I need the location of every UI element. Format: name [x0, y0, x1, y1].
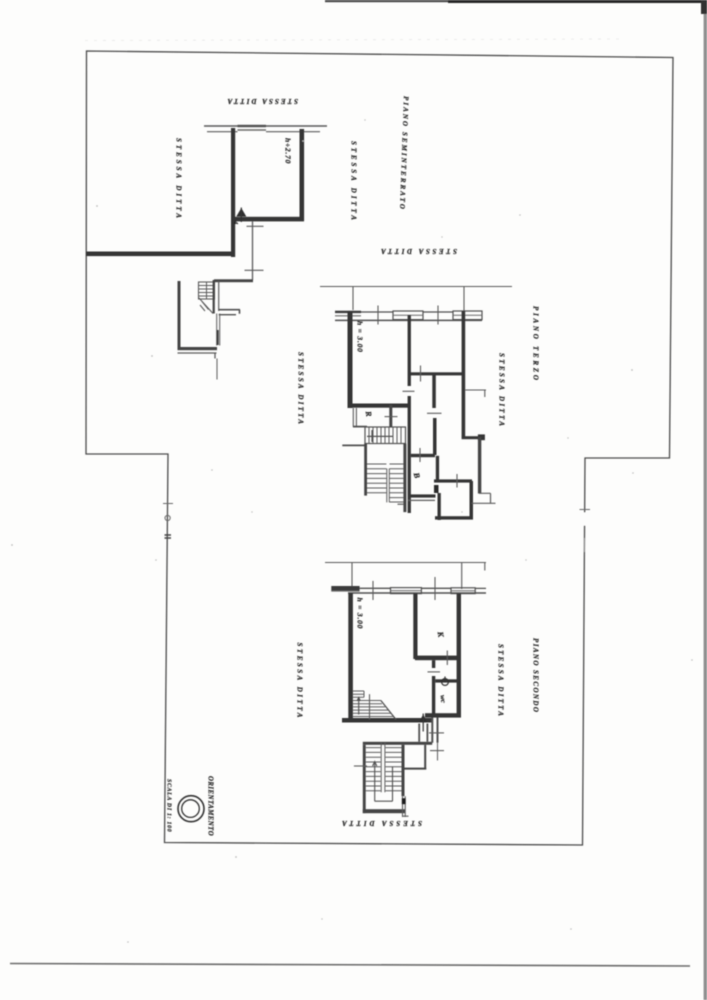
svg-text:ORIENTAMENTO: ORIENTAMENTO — [207, 776, 214, 836]
svg-text:STESSA DITTA: STESSA DITTA — [497, 644, 505, 718]
svg-text:STESSA DITTA: STESSA DITTA — [379, 247, 457, 255]
svg-text:PIANO SECONDO: PIANO SECONDO — [532, 638, 540, 713]
svg-text:B: B — [411, 471, 422, 480]
svg-text:PIANO SEMINTERRATO: PIANO SEMINTERRATO — [398, 96, 410, 210]
svg-text:h = 3.00: h = 3.00 — [356, 598, 365, 630]
svg-text:STESSA DITTA: STESSA DITTA — [297, 352, 305, 426]
svg-text:PIANO TERZO: PIANO TERZO — [532, 306, 540, 381]
svg-text:SCALA DI 1: 100: SCALA DI 1: 100 — [166, 779, 172, 832]
svg-text:STESSA DITTA: STESSA DITTA — [350, 141, 358, 222]
svg-text:K: K — [436, 630, 446, 638]
svg-text:STESSA DITTA: STESSA DITTA — [340, 819, 422, 827]
svg-text:R: R — [364, 409, 374, 417]
svg-text:STESSA DITTA: STESSA DITTA — [175, 138, 183, 220]
svg-text:STESSA DITTA: STESSA DITTA — [226, 97, 298, 105]
svg-text:h = 3.00: h = 3.00 — [356, 321, 365, 353]
svg-text:STESSA DITTA: STESSA DITTA — [498, 353, 506, 428]
svg-text:STESSA DITTA: STESSA DITTA — [296, 643, 304, 720]
svg-text:wc: wc — [439, 695, 448, 703]
svg-text:h÷2.70: h÷2.70 — [284, 138, 293, 164]
